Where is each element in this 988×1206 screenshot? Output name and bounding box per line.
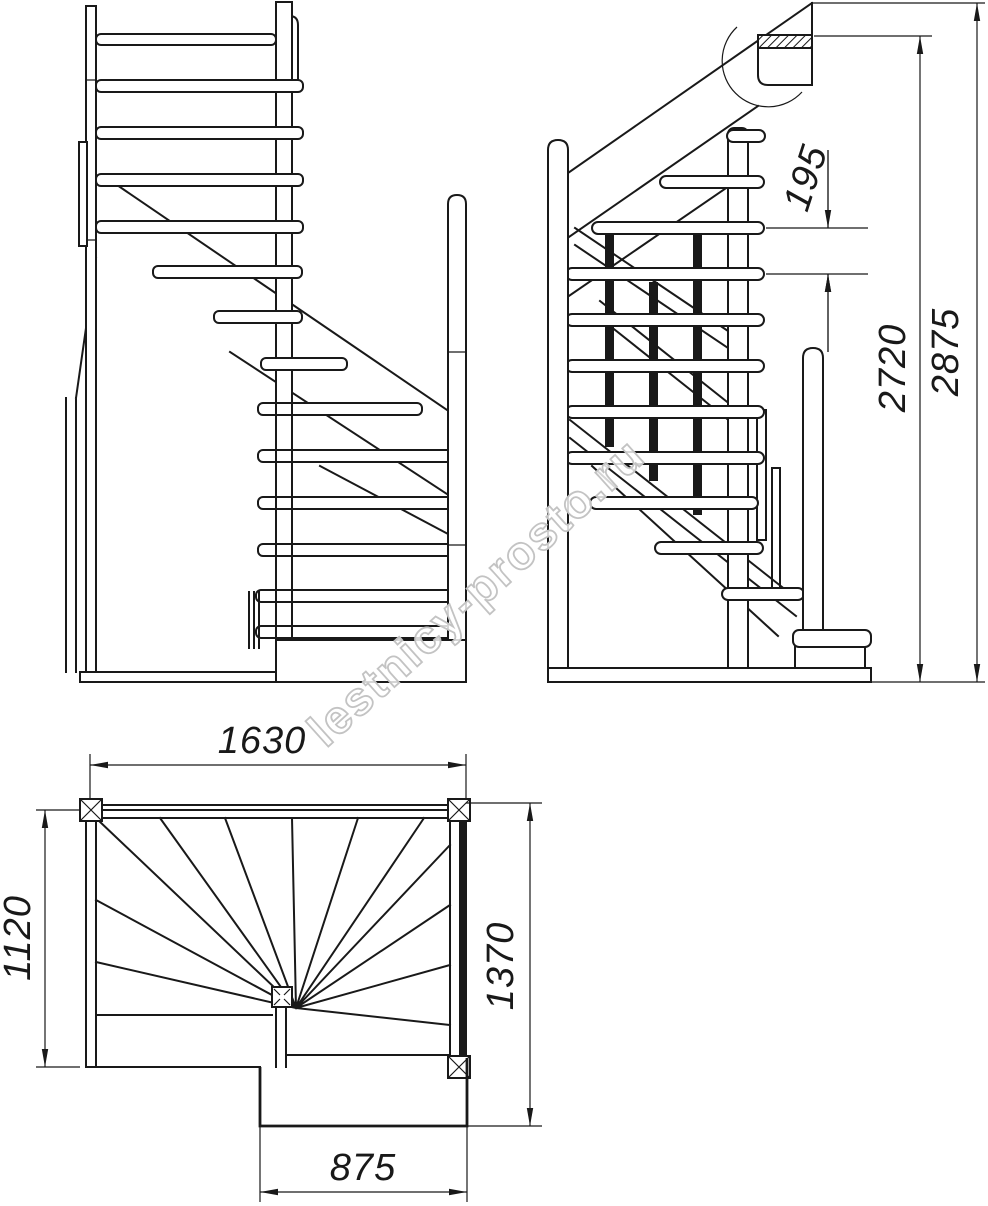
step bbox=[96, 174, 303, 186]
dim-label-plan-width: 1630 bbox=[218, 720, 307, 762]
left-wall bbox=[86, 805, 96, 1067]
winder-step bbox=[214, 311, 302, 323]
top-wall bbox=[86, 805, 466, 818]
winder-step bbox=[722, 588, 804, 600]
top-stringer-upper-edge bbox=[558, 3, 812, 180]
left-post bbox=[86, 6, 96, 672]
right-wall-stringer bbox=[459, 820, 466, 1058]
base-board bbox=[548, 668, 871, 682]
side-view-dimensions: 195 2720 2875 bbox=[766, 3, 985, 682]
rail bbox=[566, 360, 764, 372]
corner-post-top-right bbox=[448, 799, 470, 821]
dim-label-riser-height: 195 bbox=[776, 140, 836, 216]
blueprint-svg: 195 2720 2875 bbox=[0, 0, 988, 1206]
dim-label-height-to-floor: 2720 bbox=[872, 324, 914, 414]
step bbox=[258, 497, 463, 509]
step bbox=[96, 80, 303, 92]
step-edge-horizontal bbox=[96, 1015, 450, 1055]
step bbox=[258, 403, 422, 415]
step bbox=[258, 544, 463, 556]
corner-post-top-left bbox=[80, 799, 102, 821]
rail bbox=[566, 268, 764, 280]
base-board bbox=[80, 672, 276, 682]
dim-label-total-height: 2875 bbox=[925, 308, 967, 398]
rail bbox=[566, 314, 764, 326]
rail bbox=[727, 130, 765, 142]
baluster-outline bbox=[772, 468, 780, 588]
winder-step bbox=[261, 358, 347, 370]
stringer-diagonal-middle bbox=[230, 352, 450, 496]
dim-label-bottom-step-width: 875 bbox=[330, 1147, 396, 1189]
winder-step bbox=[153, 266, 302, 278]
dim-label-plan-depth-left: 1120 bbox=[0, 895, 39, 981]
entry-newel-post bbox=[803, 348, 823, 632]
rail bbox=[566, 406, 764, 418]
dim-label-plan-depth-right: 1370 bbox=[480, 922, 522, 1011]
plan-view bbox=[80, 799, 470, 1126]
staircase-blueprint: 195 2720 2875 bbox=[0, 0, 988, 1206]
center-pole bbox=[276, 2, 292, 672]
first-step-tread bbox=[793, 630, 871, 647]
step bbox=[96, 221, 303, 233]
step bbox=[258, 450, 456, 462]
bottom-landing-outline bbox=[260, 1058, 467, 1126]
baluster-outline bbox=[757, 410, 766, 540]
front-elevation-view bbox=[66, 2, 466, 682]
rail bbox=[592, 222, 764, 234]
handrail bbox=[96, 34, 276, 45]
first-step-riser bbox=[795, 645, 865, 669]
floor-hatching bbox=[758, 35, 812, 48]
step bbox=[96, 127, 303, 139]
left-post bbox=[548, 140, 568, 672]
winder-step bbox=[655, 542, 763, 554]
rail bbox=[660, 176, 764, 188]
wall-bracket bbox=[79, 142, 87, 246]
